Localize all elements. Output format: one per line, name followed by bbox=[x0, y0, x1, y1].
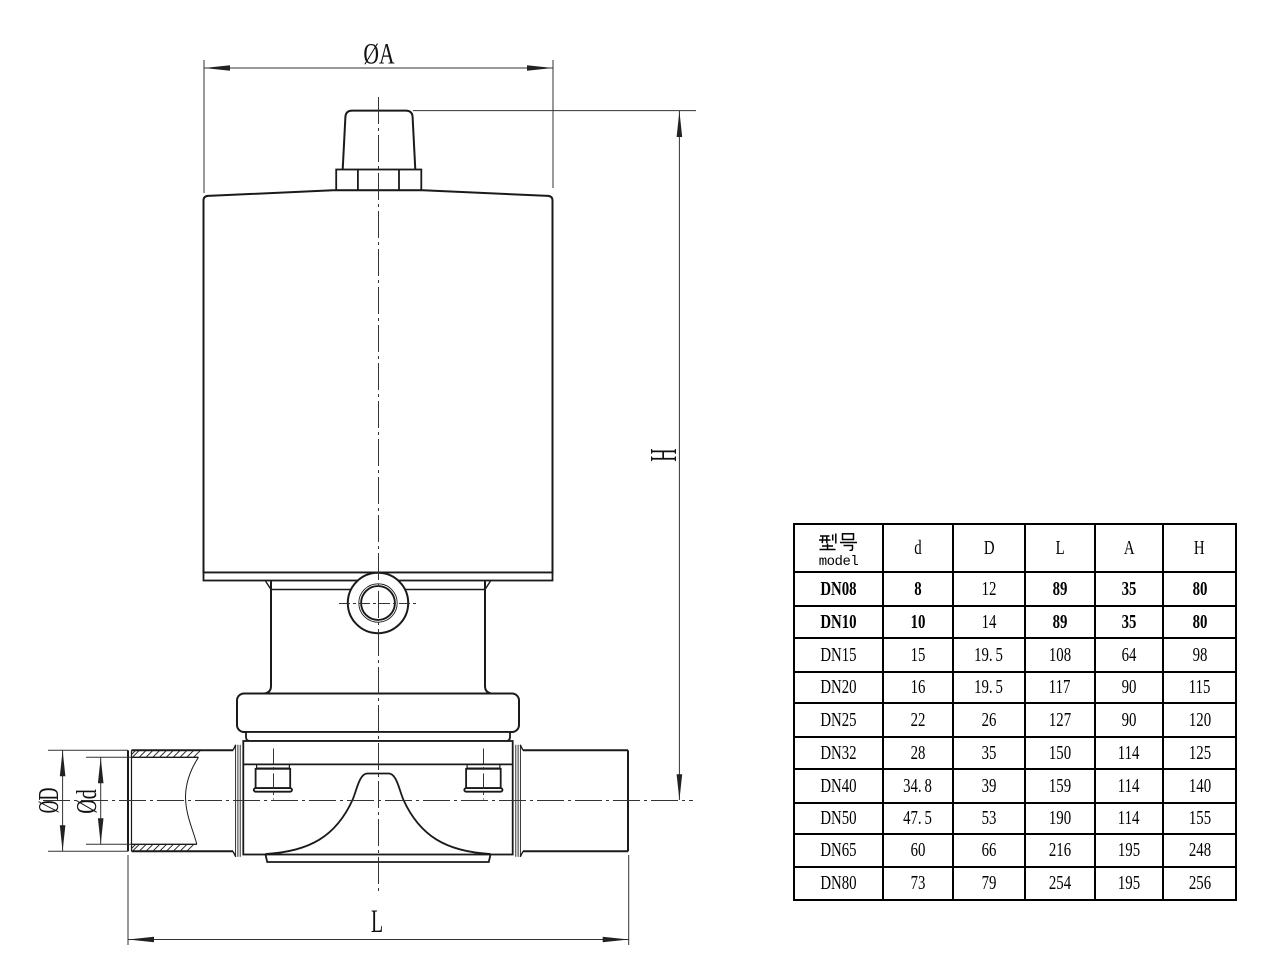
svg-text:L: L bbox=[371, 903, 383, 939]
svg-text:ØA: ØA bbox=[363, 37, 394, 70]
svg-text:Ød: Ød bbox=[72, 789, 103, 814]
svg-text:H: H bbox=[643, 448, 685, 461]
